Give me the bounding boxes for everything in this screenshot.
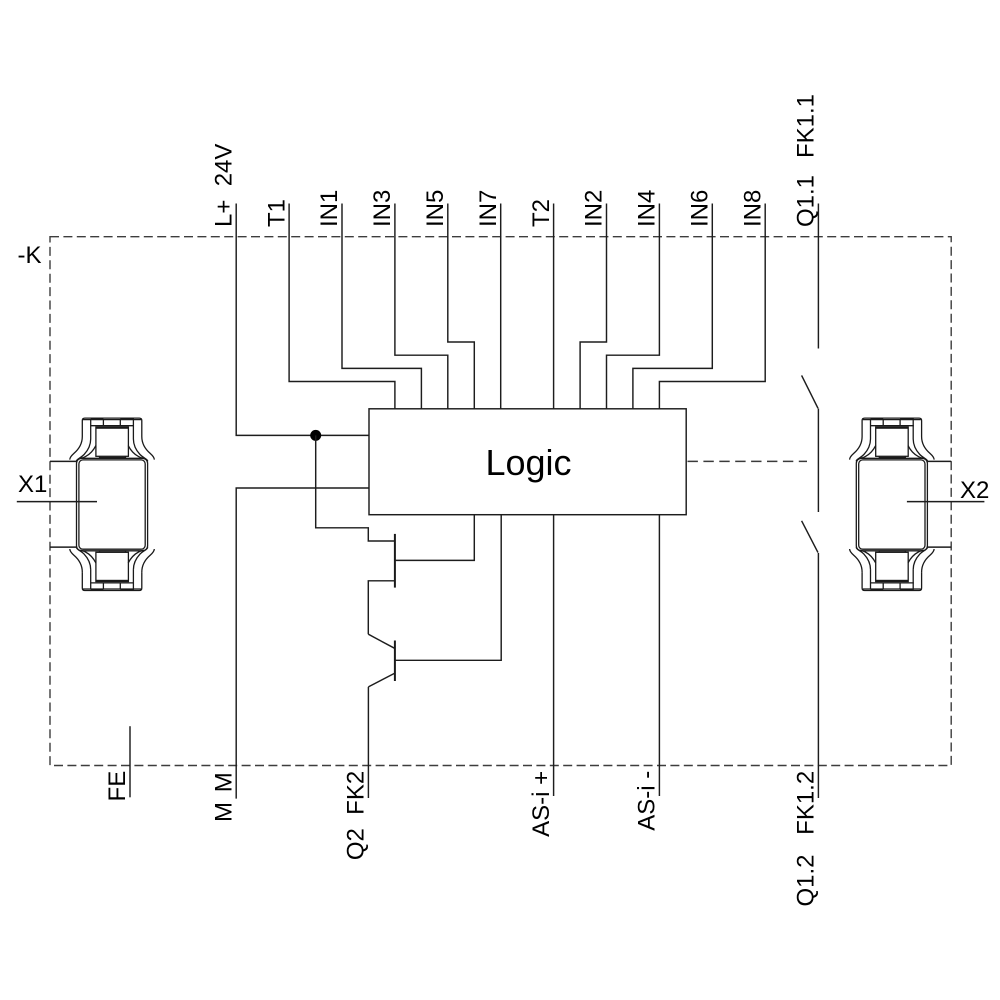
svg-text:IN7: IN7 (475, 190, 502, 227)
svg-text:AS-i -: AS-i - (634, 771, 661, 831)
svg-text:X1: X1 (18, 471, 47, 498)
svg-text:T1: T1 (263, 199, 290, 227)
svg-text:L+ 24V: L+ 24V (210, 144, 237, 227)
svg-text:Q1.2: Q1.2 (793, 855, 820, 907)
svg-text:IN8: IN8 (739, 190, 766, 227)
svg-text:Q2 FK2: Q2 FK2 (343, 771, 370, 860)
svg-text:AS-i +: AS-i + (528, 771, 555, 837)
svg-text:FK1.1: FK1.1 (793, 94, 820, 158)
svg-text:M M: M M (210, 771, 237, 822)
svg-text:FE: FE (104, 771, 131, 802)
svg-text:IN3: IN3 (369, 190, 396, 227)
svg-text:Q1.1: Q1.1 (793, 175, 820, 227)
svg-text:IN4: IN4 (634, 190, 661, 227)
svg-text:X2: X2 (960, 477, 989, 504)
svg-text:T2: T2 (528, 199, 555, 227)
svg-text:IN5: IN5 (422, 190, 449, 227)
svg-text:IN1: IN1 (316, 190, 343, 227)
svg-text:IN6: IN6 (687, 190, 714, 227)
svg-text:-K: -K (18, 242, 42, 269)
svg-text:FK1.2: FK1.2 (793, 771, 820, 835)
svg-text:Logic: Logic (485, 442, 571, 483)
svg-text:IN2: IN2 (581, 190, 608, 227)
